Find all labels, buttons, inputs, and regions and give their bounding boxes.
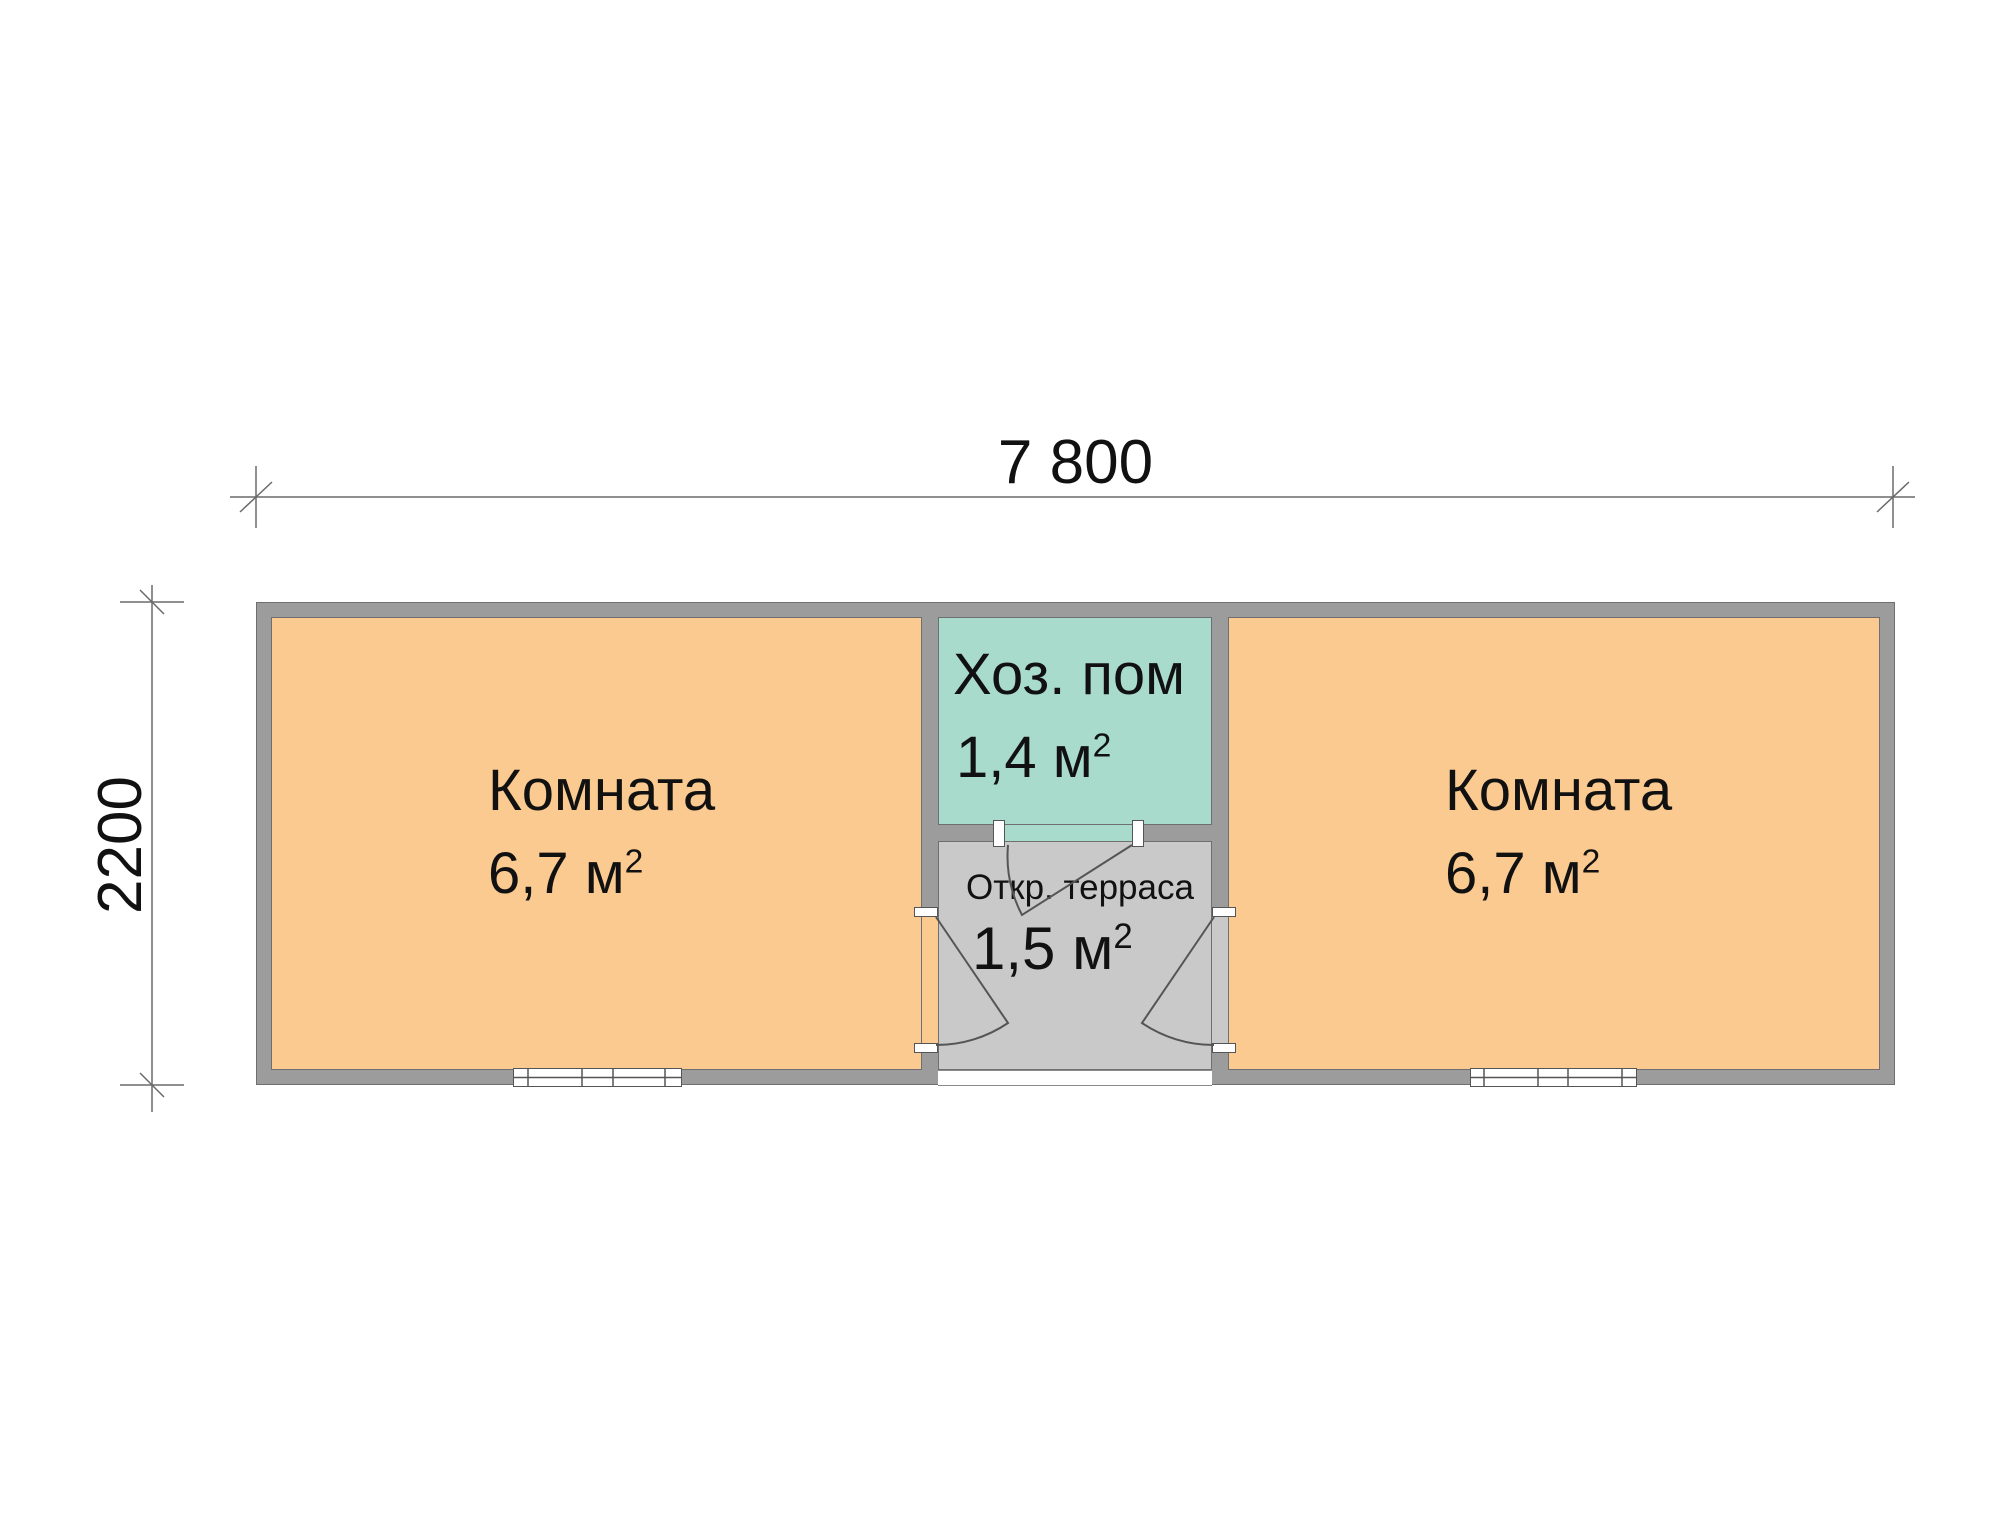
room-right-label: Комната [1445,762,1672,820]
terrace-area: 1,5 м2 [972,919,1133,979]
utility-door-jamb-left [993,820,1005,847]
door-opening-right [1212,917,1228,1043]
right-door-jamb-bottom [1212,1043,1236,1053]
room-right-area-sup: 2 [1582,844,1601,881]
right-door-jamb-top [1212,907,1236,917]
utility-area: 1,4 м2 [956,729,1111,787]
window-left [513,1068,682,1087]
room-right-area: 6,7 м2 [1445,845,1600,903]
floor-plan: Комната 6,7 м2 Хоз. пом 1,4 м2 Откр. тер… [0,0,2000,1538]
dimension-width-label: 7 800 [256,432,1895,494]
terrace-threshold [938,1070,1212,1086]
dimension-height-label: 2200 [90,776,152,914]
room-left-area: 6,7 м2 [488,845,643,903]
room-left-label: Комната [488,762,715,820]
utility-area-sup: 2 [1093,728,1112,765]
left-door-jamb-top [914,907,938,917]
room-left-area-sup: 2 [625,844,644,881]
terrace-area-sup: 2 [1113,917,1132,956]
utility-door-jamb-right [1132,820,1144,847]
terrace-label: Откр. терраса [966,870,1194,905]
utility-label: Хоз. пом [953,646,1185,704]
left-door-jamb-bottom [914,1043,938,1053]
door-opening-utility [1005,825,1132,841]
door-opening-left [922,917,938,1043]
window-right [1470,1068,1637,1087]
